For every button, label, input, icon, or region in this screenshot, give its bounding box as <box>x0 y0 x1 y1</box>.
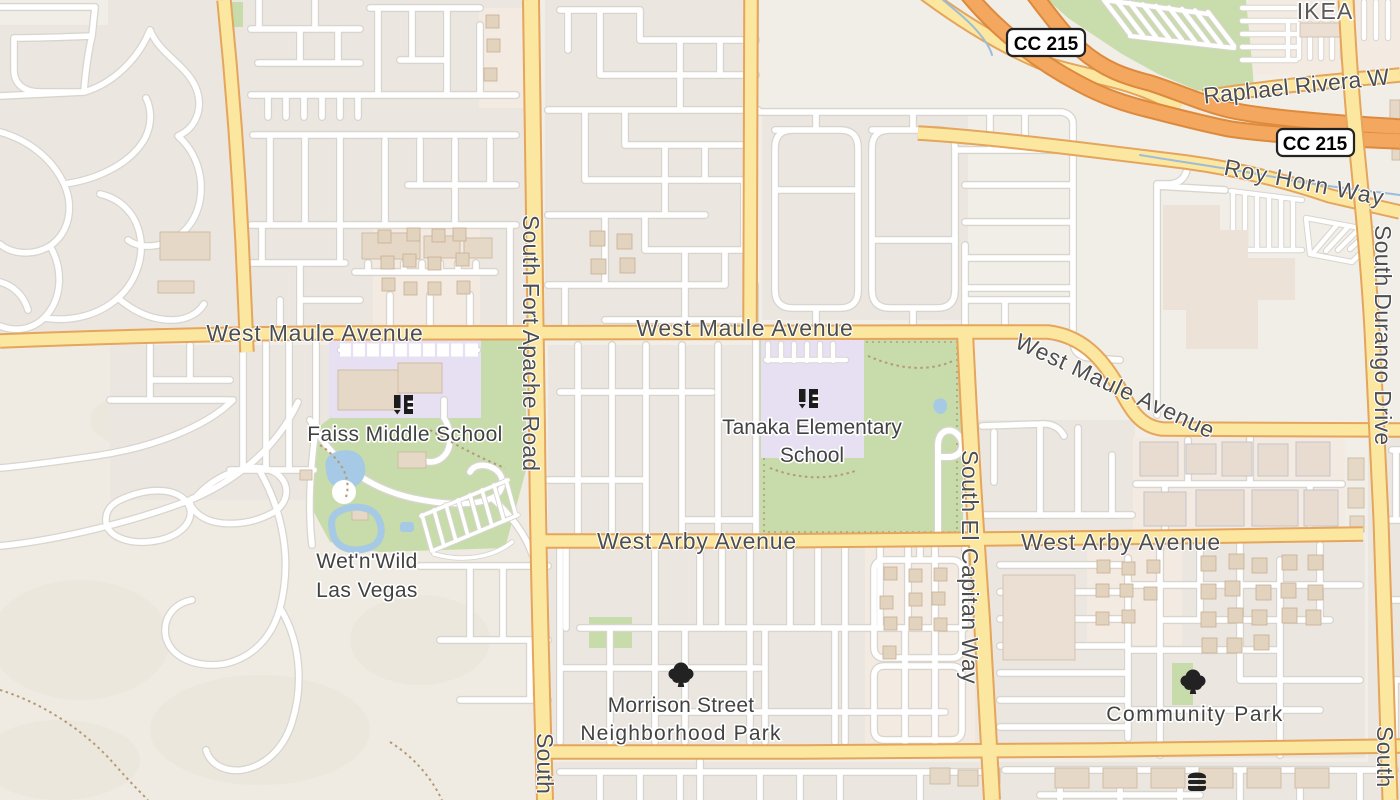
svg-text:West Maule Avenue: West Maule Avenue <box>206 320 423 346</box>
svg-text:School: School <box>780 444 844 467</box>
svg-text:Faiss Middle School: Faiss Middle School <box>307 423 503 446</box>
svg-text:South Fort: South Fort <box>532 733 558 800</box>
svg-text:CC 215: CC 215 <box>1014 34 1079 55</box>
svg-text:South Fort Apache Road: South Fort Apache Road <box>518 215 544 471</box>
svg-text:Morrison Street: Morrison Street <box>608 694 755 717</box>
svg-text:West Arby Avenue: West Arby Avenue <box>597 528 797 554</box>
svg-text:West Maule Avenue: West Maule Avenue <box>636 315 853 341</box>
svg-text:South: South <box>1372 726 1398 788</box>
svg-text:CC 215: CC 215 <box>1283 134 1348 155</box>
svg-text:Community Park: Community Park <box>1106 703 1284 726</box>
svg-text:Tanaka Elementary: Tanaka Elementary <box>722 416 902 439</box>
svg-text:Neighborhood Park: Neighborhood Park <box>580 722 781 745</box>
svg-text:South El Capitan Way: South El Capitan Way <box>957 450 983 684</box>
svg-text:South Durango Drive: South Durango Drive <box>1370 225 1396 445</box>
svg-text:West Arby Avenue: West Arby Avenue <box>1021 529 1221 555</box>
svg-text:Wet'n'Wild: Wet'n'Wild <box>316 550 417 573</box>
svg-text:IKEA: IKEA <box>1297 0 1353 24</box>
svg-text:Las Vegas: Las Vegas <box>316 579 418 602</box>
